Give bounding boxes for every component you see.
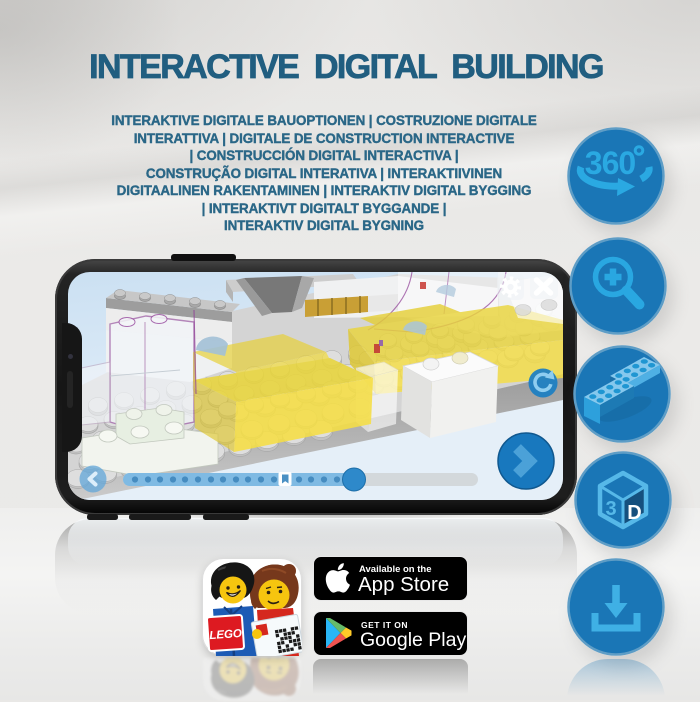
svg-text:3: 3 xyxy=(605,498,616,520)
svg-text:LEGO: LEGO xyxy=(209,628,242,642)
svg-text:360: 360 xyxy=(585,145,636,181)
svg-text:D: D xyxy=(627,502,641,524)
